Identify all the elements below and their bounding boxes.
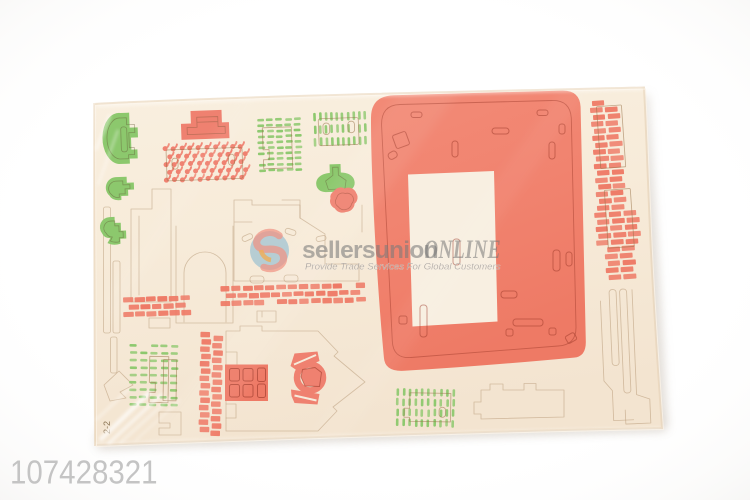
svg-text:sellersunion: sellersunion (302, 237, 438, 264)
svg-text:Provide Trade Services For Glo: Provide Trade Services For Global Custom… (305, 262, 501, 273)
svg-text:ONLINE: ONLINE (424, 235, 501, 263)
svg-text:107428321: 107428321 (10, 453, 158, 491)
